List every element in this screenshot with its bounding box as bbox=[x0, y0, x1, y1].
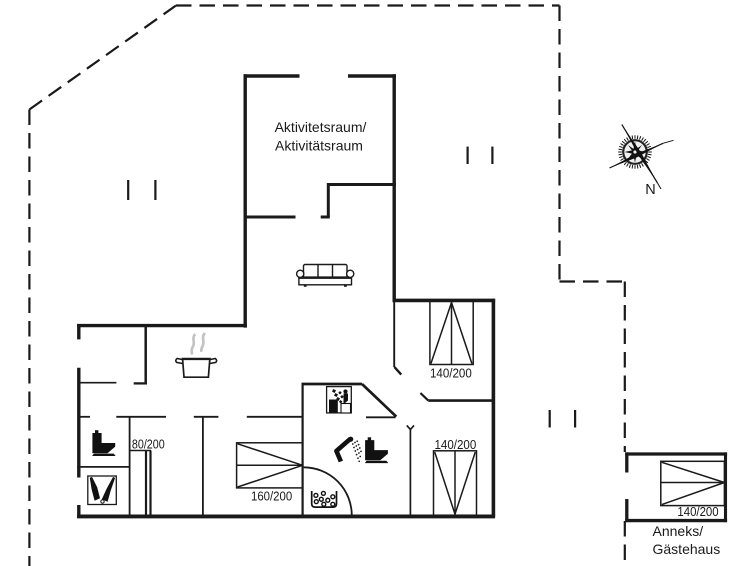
svg-text:N: N bbox=[645, 182, 655, 198]
svg-text:Aktivitätsraum: Aktivitätsraum bbox=[275, 137, 363, 153]
svg-text:Gästehaus: Gästehaus bbox=[653, 541, 721, 557]
svg-text:Anneks/: Anneks/ bbox=[653, 523, 704, 539]
svg-text:160/200: 160/200 bbox=[251, 489, 292, 504]
svg-text:80/200: 80/200 bbox=[132, 436, 165, 451]
svg-text:Aktivitetsraum/: Aktivitetsraum/ bbox=[275, 119, 367, 135]
svg-text:140/200: 140/200 bbox=[435, 437, 477, 452]
svg-text:140/200: 140/200 bbox=[677, 504, 718, 519]
svg-text:140/200: 140/200 bbox=[430, 366, 472, 381]
